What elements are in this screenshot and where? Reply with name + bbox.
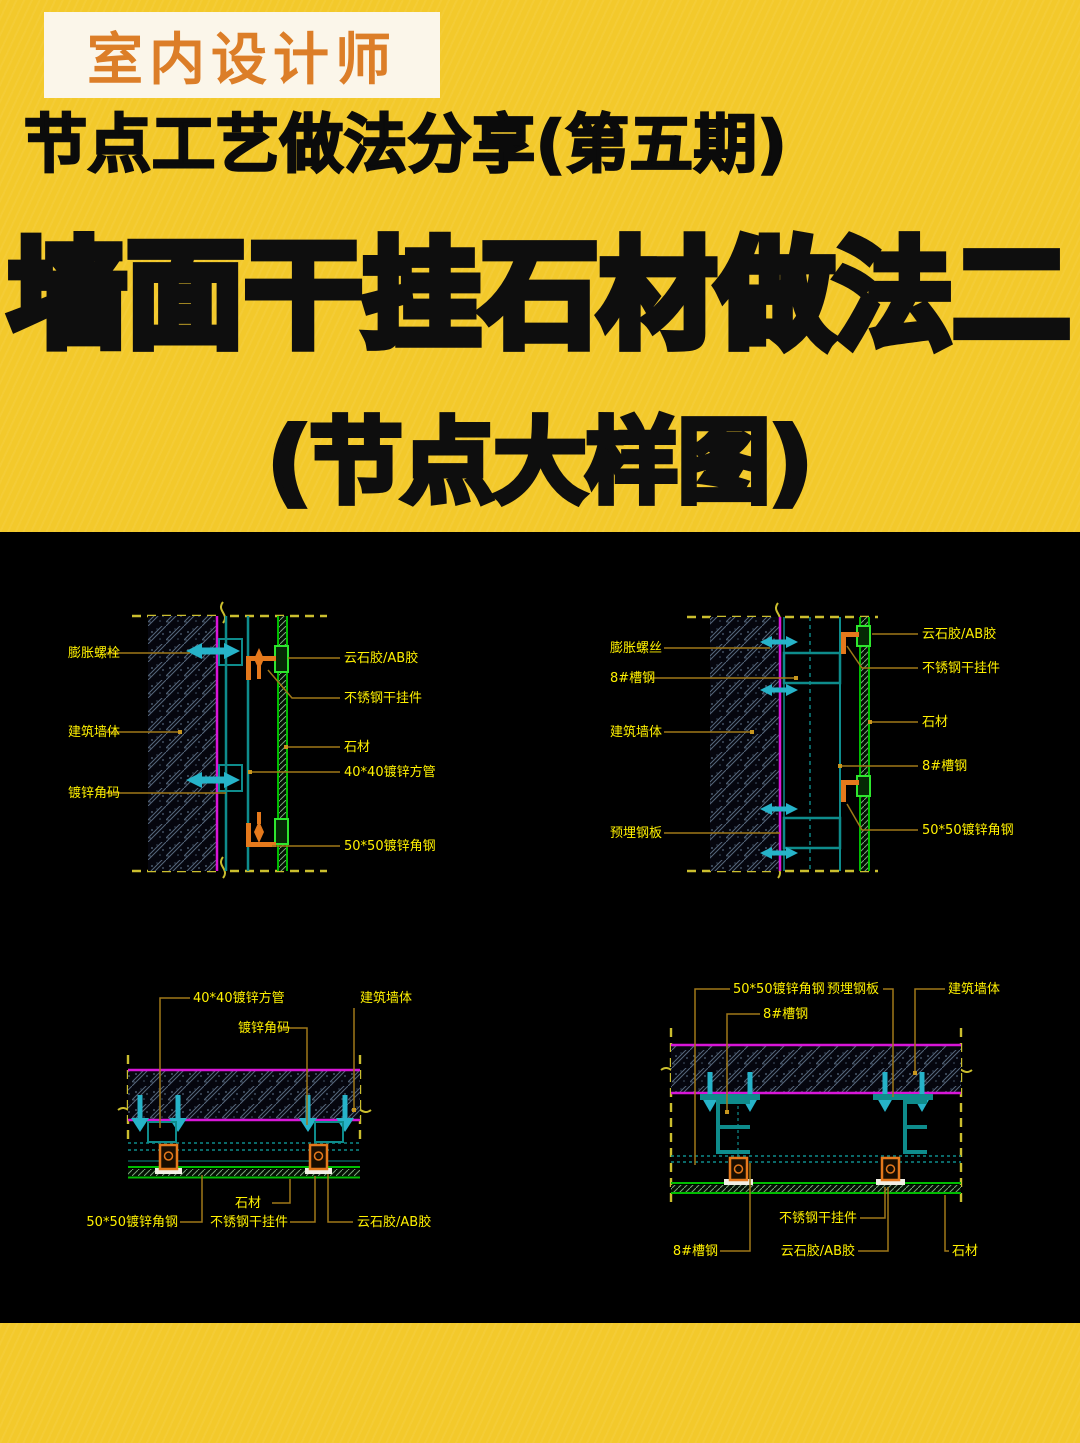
cad-label: 50*50镀锌角钢 (922, 822, 1014, 838)
detail-drawing-bottom-left: 40*40镀锌方管 建筑墙体 镀锌角码 石材 50*50镀锌角钢 不锈钢干挂件 … (60, 960, 540, 1280)
leader-lines (106, 653, 340, 846)
cad-label: 建筑墙体 (948, 981, 1000, 997)
badge-label: 室内设计师 (87, 15, 397, 96)
cad-label: 建筑墙体 (610, 724, 662, 740)
cad-label: 膨胀螺栓 (68, 646, 120, 661)
cad-label: 膨胀螺丝 (610, 641, 662, 656)
cad-label: 8#槽钢 (922, 759, 967, 774)
stone-panel (275, 616, 288, 871)
stone-panel (857, 617, 870, 871)
cad-label: 不锈钢干挂件 (779, 1211, 857, 1226)
cad-label: 镀锌角码 (68, 785, 120, 801)
cad-label: 预埋钢板 (827, 982, 879, 997)
cad-label: 石材 (922, 715, 948, 730)
cad-panel: 膨胀螺栓 建筑墙体 镀锌角码 云石胶/AB胶 不锈钢干挂件 石材 40*40镀锌… (0, 532, 1080, 1323)
wall-hatch (671, 1046, 961, 1092)
channel-steel-frame (784, 617, 840, 871)
cad-labels: 50*50镀锌角钢 预埋钢板 建筑墙体 8#槽钢 不锈钢干挂件 8#槽钢 云石胶… (673, 981, 1000, 1259)
cad-labels: 膨胀螺丝 8#槽钢 建筑墙体 预埋钢板 云石胶/AB胶 不锈钢干挂件 石材 8#… (610, 626, 1014, 841)
cad-label: 云石胶/AB胶 (781, 1243, 855, 1259)
cad-label: 不锈钢干挂件 (344, 691, 422, 706)
cad-label: 石材 (235, 1196, 261, 1211)
cad-label: 50*50镀锌角钢 (344, 838, 436, 854)
page-subtitle: (节点大样图) (0, 388, 1080, 521)
cad-label: 云石胶/AB胶 (344, 650, 418, 666)
cad-label: 8#槽钢 (610, 671, 655, 686)
series-title: 节点工艺做法分享(第五期) (24, 94, 788, 185)
cad-labels: 膨胀螺栓 建筑墙体 镀锌角码 云石胶/AB胶 不锈钢干挂件 石材 40*40镀锌… (68, 646, 436, 854)
cad-label: 石材 (952, 1244, 978, 1259)
detail-drawing-bottom-right: 50*50镀锌角钢 预埋钢板 建筑墙体 8#槽钢 不锈钢干挂件 8#槽钢 云石胶… (600, 960, 1080, 1280)
cad-label: 不锈钢干挂件 (922, 661, 1000, 676)
cad-label: 50*50镀锌角钢 (733, 981, 825, 997)
stone-panel (671, 1183, 961, 1193)
cad-label: 石材 (344, 740, 370, 755)
channel-steel-frame (671, 1094, 961, 1162)
cad-label: 不锈钢干挂件 (210, 1215, 288, 1230)
cad-label: 8#槽钢 (763, 1007, 808, 1022)
cad-label: 镀锌角码 (238, 1020, 290, 1036)
cad-label: 8#槽钢 (673, 1244, 718, 1259)
wall-hatch (128, 1071, 360, 1119)
poster: 室内设计师 节点工艺做法分享(第五期) 墙面干挂石材做法二 (节点大样图) (0, 0, 1080, 1443)
cad-label: 40*40镀锌方管 (344, 764, 436, 780)
cad-label: 40*40镀锌方管 (193, 990, 285, 1006)
hanger-bracket (246, 648, 276, 847)
cad-label: 云石胶/AB胶 (357, 1214, 431, 1230)
cad-label: 云石胶/AB胶 (922, 626, 996, 642)
cad-label: 50*50镀锌角钢 (86, 1214, 178, 1230)
cad-label: 预埋钢板 (610, 826, 662, 841)
page-title: 墙面干挂石材做法二 (0, 200, 1080, 370)
detail-drawing-top-right: 膨胀螺丝 8#槽钢 建筑墙体 预埋钢板 云石胶/AB胶 不锈钢干挂件 石材 8#… (600, 590, 1080, 905)
cad-label: 建筑墙体 (360, 990, 412, 1006)
detail-drawing-top-left: 膨胀螺栓 建筑墙体 镀锌角码 云石胶/AB胶 不锈钢干挂件 石材 40*40镀锌… (40, 590, 520, 905)
cad-label: 建筑墙体 (68, 724, 120, 740)
designer-badge: 室内设计师 (44, 12, 440, 98)
